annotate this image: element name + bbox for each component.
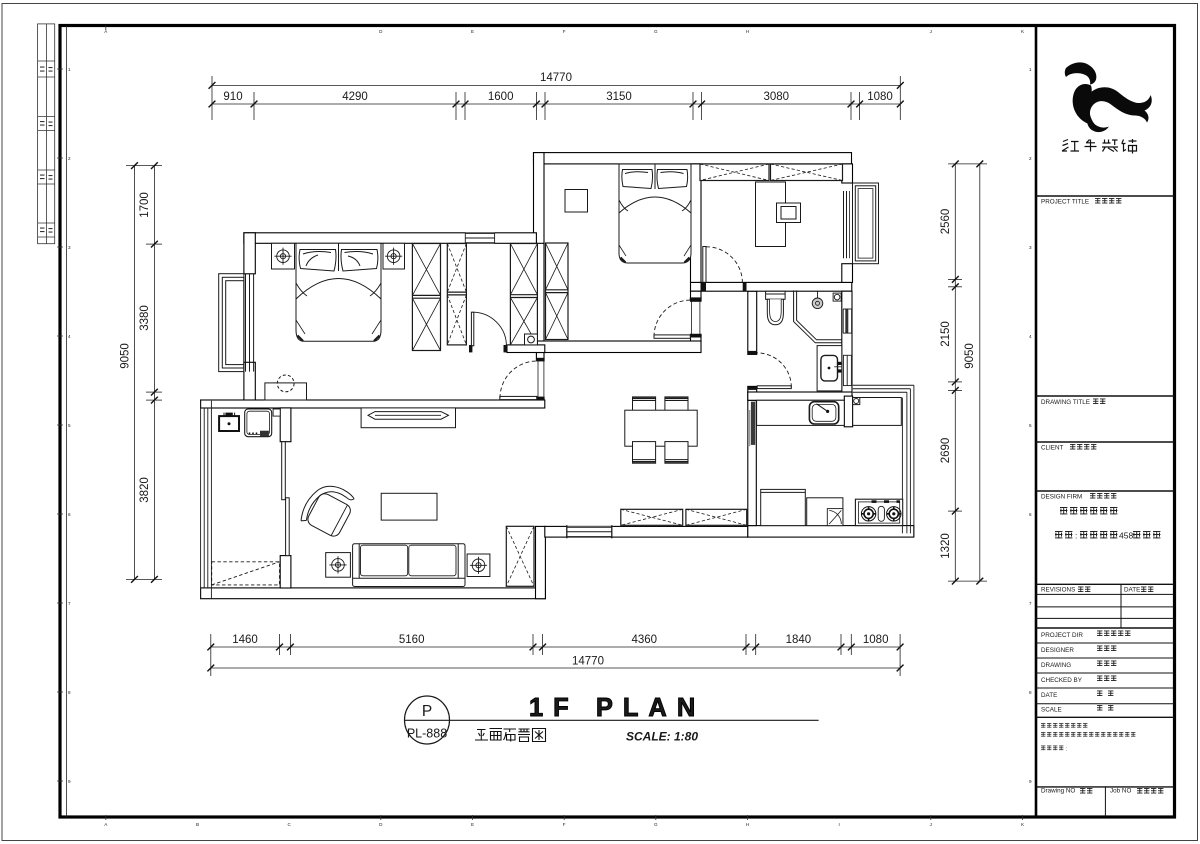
svg-text:5160: 5160 — [399, 634, 425, 646]
svg-text:3080: 3080 — [764, 91, 790, 103]
svg-text::: : — [1075, 532, 1077, 541]
svg-text:458: 458 — [1119, 531, 1133, 541]
svg-text:DRAWING: DRAWING — [1041, 662, 1071, 669]
svg-text:4360: 4360 — [632, 634, 658, 646]
svg-text:7: 7 — [1029, 601, 1032, 606]
svg-text:3820: 3820 — [139, 477, 151, 503]
svg-text:7: 7 — [68, 601, 71, 606]
svg-text:6: 6 — [1029, 512, 1032, 517]
svg-text:3150: 3150 — [606, 91, 632, 103]
svg-text:SCALE: 1:80: SCALE: 1:80 — [626, 730, 698, 744]
svg-text:SCALE: SCALE — [1041, 707, 1062, 714]
svg-text:3: 3 — [1029, 245, 1032, 250]
svg-text:J: J — [930, 29, 932, 34]
svg-text:DESIGNER: DESIGNER — [1041, 647, 1074, 654]
svg-text:5: 5 — [68, 423, 71, 428]
svg-text:J: J — [930, 822, 932, 827]
svg-text:F: F — [563, 822, 566, 827]
svg-text:CHECKED BY: CHECKED BY — [1041, 677, 1083, 684]
svg-text:E: E — [471, 29, 474, 34]
svg-text:3380: 3380 — [139, 305, 151, 331]
svg-text:9: 9 — [1029, 779, 1032, 784]
svg-text:9050: 9050 — [964, 343, 976, 369]
svg-text:4: 4 — [1029, 334, 1032, 339]
svg-text:2150: 2150 — [940, 321, 952, 347]
svg-text:1080: 1080 — [863, 634, 889, 646]
svg-text:1320: 1320 — [940, 533, 952, 559]
svg-text:Drawing NO: Drawing NO — [1041, 788, 1075, 795]
svg-text:DATE: DATE — [1124, 587, 1140, 594]
svg-text:DRAWING TITLE: DRAWING TITLE — [1041, 399, 1090, 406]
svg-text:PL-888: PL-888 — [407, 727, 447, 741]
svg-text:3: 3 — [68, 245, 71, 250]
svg-text:REVISIONS: REVISIONS — [1041, 587, 1075, 594]
svg-text:1080: 1080 — [867, 91, 893, 103]
svg-text:1: 1 — [68, 67, 71, 72]
svg-text:DATE: DATE — [1041, 692, 1057, 699]
svg-text:2690: 2690 — [940, 438, 952, 464]
svg-text:B: B — [196, 822, 199, 827]
svg-text:1840: 1840 — [786, 634, 812, 646]
svg-text:2560: 2560 — [940, 209, 952, 235]
svg-text:14770: 14770 — [572, 656, 604, 668]
svg-text:8: 8 — [68, 690, 71, 695]
svg-text:G: G — [654, 822, 658, 827]
svg-text:1F PLAN: 1F PLAN — [529, 694, 705, 722]
svg-text:1600: 1600 — [488, 91, 514, 103]
svg-text:Job NO: Job NO — [1110, 788, 1131, 795]
svg-text:6: 6 — [68, 512, 71, 517]
svg-text:4: 4 — [68, 334, 71, 339]
svg-text:1: 1 — [1029, 67, 1032, 72]
svg-text:910: 910 — [223, 91, 242, 103]
svg-text:PROJECT TITLE: PROJECT TITLE — [1041, 199, 1089, 206]
svg-text:14770: 14770 — [540, 72, 572, 84]
svg-text:4290: 4290 — [342, 91, 368, 103]
svg-text:1700: 1700 — [139, 192, 151, 218]
svg-text:I: I — [839, 822, 840, 827]
svg-text:P: P — [422, 703, 432, 720]
svg-text:1460: 1460 — [232, 634, 258, 646]
svg-text:2: 2 — [1029, 156, 1032, 161]
svg-text:5: 5 — [1029, 423, 1032, 428]
svg-text:2: 2 — [68, 156, 71, 161]
svg-text:DESIGN FIRM: DESIGN FIRM — [1041, 494, 1082, 501]
svg-text:CLIENT: CLIENT — [1041, 445, 1064, 452]
svg-text:PROJECT DIR: PROJECT DIR — [1041, 632, 1083, 639]
svg-text:9050: 9050 — [120, 343, 132, 369]
svg-text:9: 9 — [68, 779, 71, 784]
svg-text:H: H — [746, 822, 749, 827]
svg-text:E: E — [471, 822, 474, 827]
svg-text:8: 8 — [1029, 690, 1032, 695]
svg-text:G: G — [654, 29, 658, 34]
svg-text:H: H — [746, 29, 749, 34]
svg-text:F: F — [563, 29, 566, 34]
